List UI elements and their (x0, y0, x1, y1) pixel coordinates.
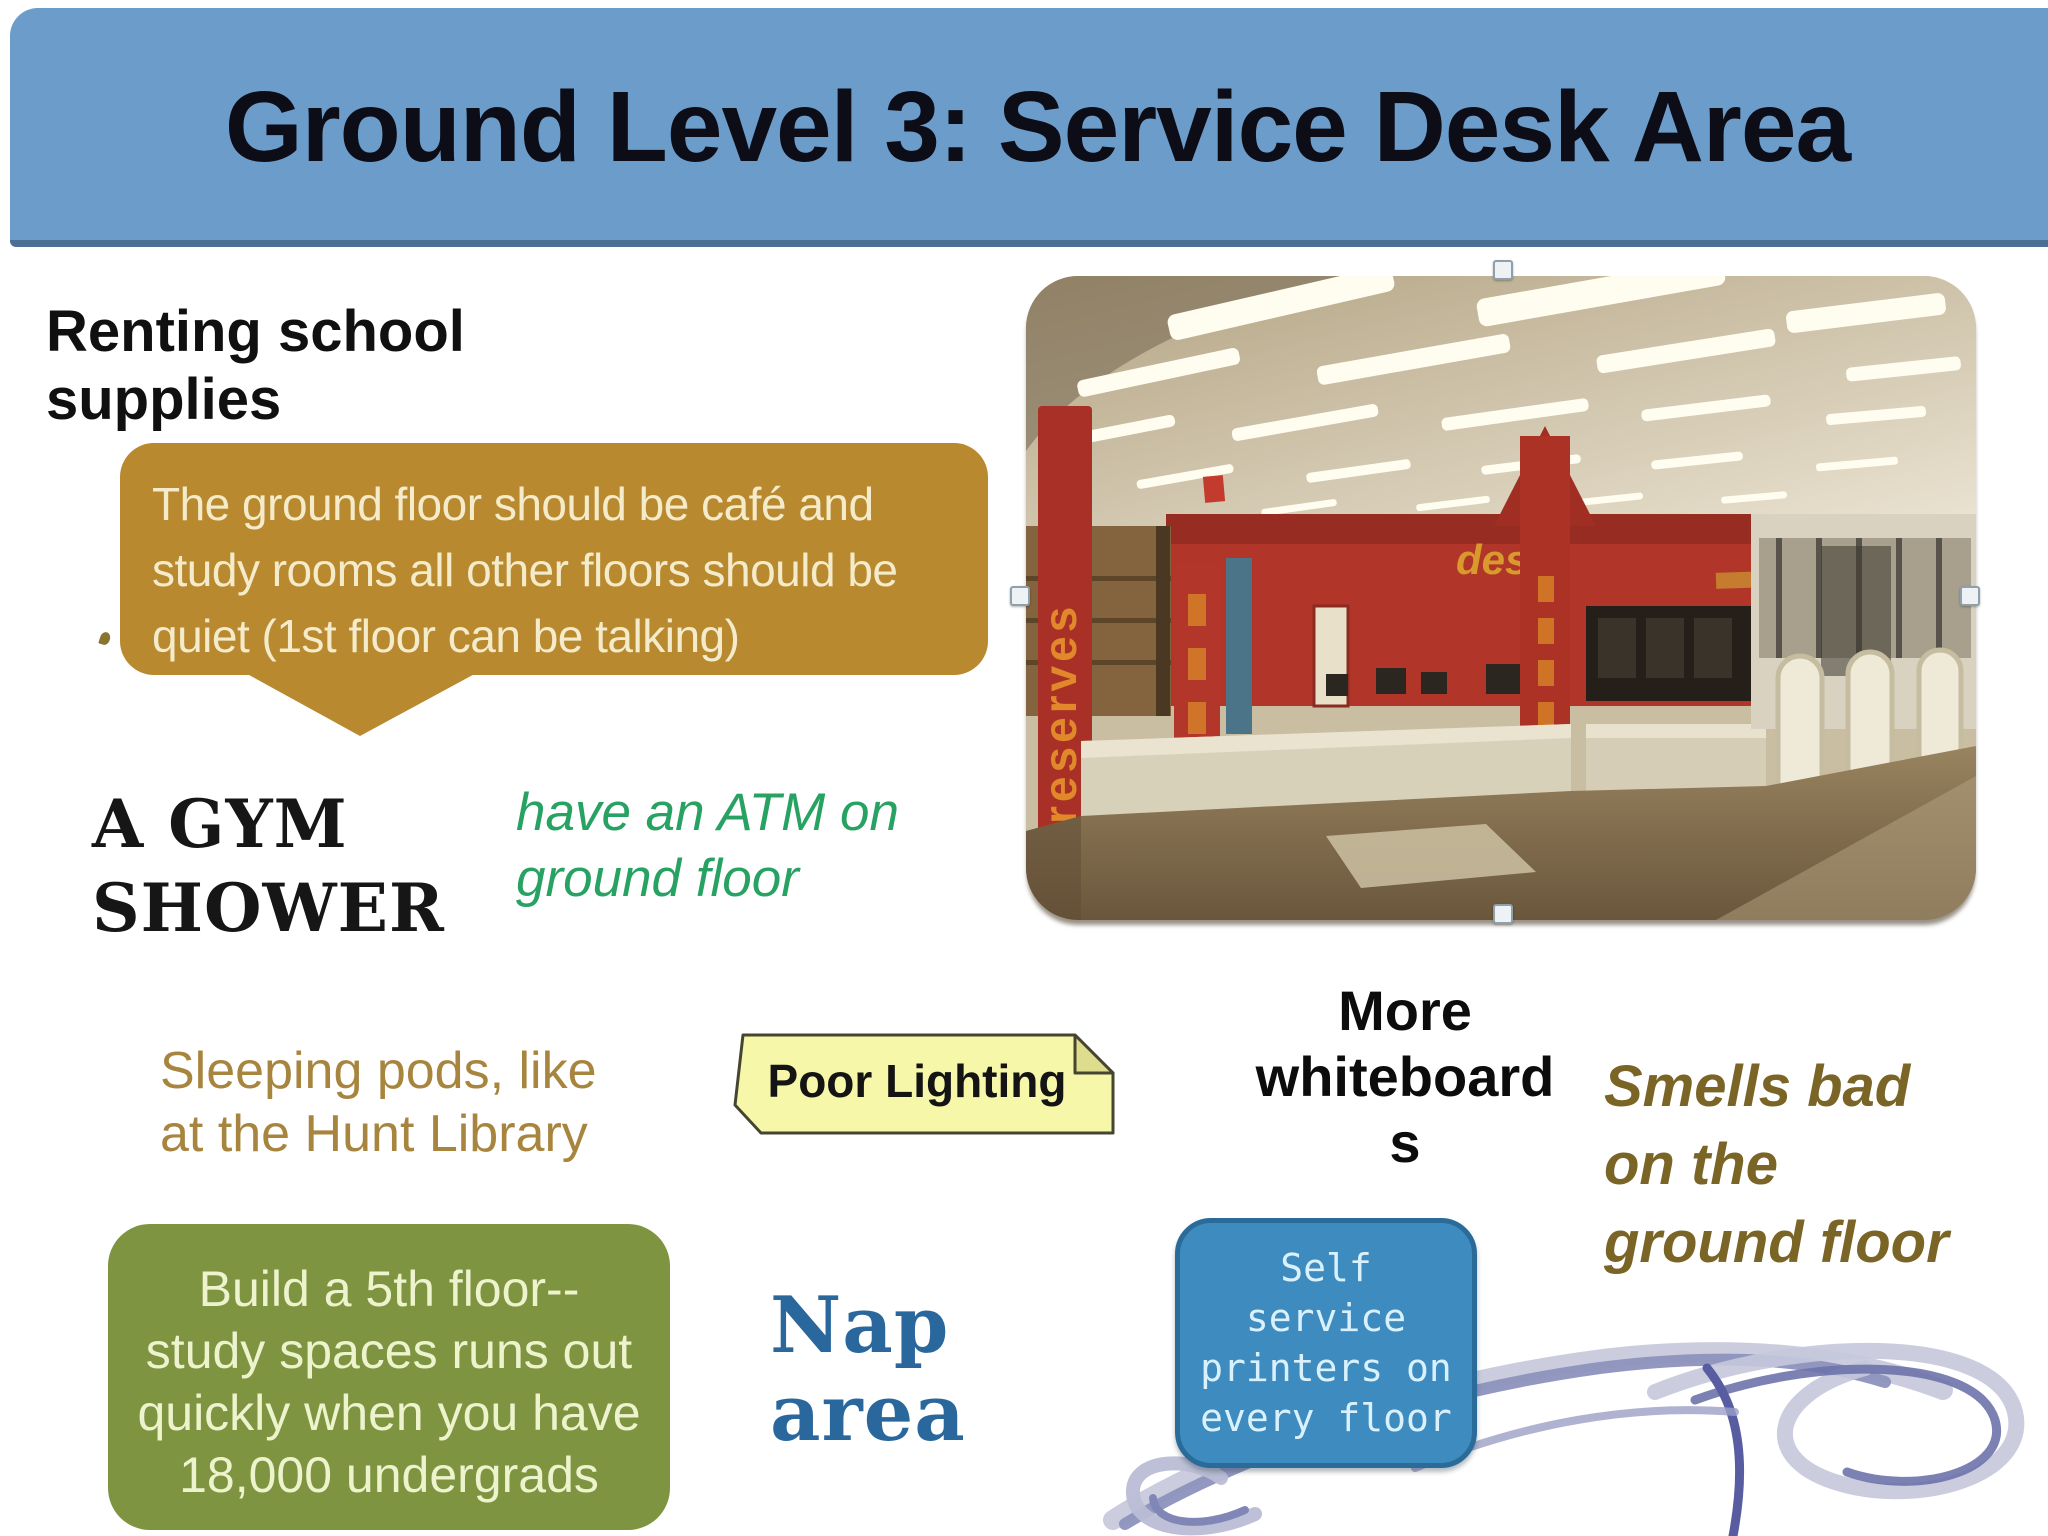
note-line: Renting school (46, 298, 465, 366)
note-line: ground floor (1604, 1204, 1949, 1282)
note-line: ground floor (516, 846, 899, 912)
note-renting-school-supplies[interactable]: Renting school supplies (46, 298, 465, 434)
slide-canvas: Ground Level 3: Service Desk Area Rentin… (0, 0, 2048, 1536)
resize-handle-right[interactable] (1960, 586, 1980, 606)
note-line: quickly when you have (108, 1382, 670, 1444)
note-line: supplies (46, 366, 465, 434)
note-line: A GYM (92, 782, 445, 866)
note-line: Nap (770, 1282, 966, 1370)
note-line: s (1245, 1110, 1565, 1176)
resize-handle-bottom[interactable] (1493, 904, 1513, 924)
page-title: Ground Level 3: Service Desk Area (225, 64, 1850, 185)
photo-illustration: reserves desk (1026, 276, 1976, 920)
note-self-service-printers[interactable]: Self service printers on every floor (1175, 1218, 1477, 1468)
note-line: area (770, 1370, 966, 1458)
note-smells-bad[interactable]: Smells bad on the ground floor (1604, 1048, 1949, 1282)
note-build-5th-floor[interactable]: Build a 5th floor-- study spaces runs ou… (108, 1224, 670, 1530)
note-line: Sleeping pods, like (160, 1040, 597, 1103)
stray-ink-mark (98, 631, 112, 646)
note-line: have an ATM on (516, 780, 899, 846)
note-line: whiteboard (1245, 1044, 1565, 1110)
resize-handle-top[interactable] (1493, 260, 1513, 280)
photo-service-desk[interactable]: reserves desk (1026, 276, 1976, 920)
note-line: quiet (1st floor can be talking) (152, 603, 898, 669)
note-line: The ground floor should be café and (152, 471, 898, 537)
poor-lighting-label: Poor Lighting (721, 1031, 1113, 1131)
note-line: More (1245, 978, 1565, 1044)
note-line: study spaces runs out (108, 1320, 670, 1382)
note-line: at the Hunt Library (160, 1103, 597, 1166)
speech-bubble-tail (240, 670, 482, 736)
note-line: 18,000 undergrads (108, 1444, 670, 1506)
note-line: Build a 5th floor-- (108, 1258, 670, 1320)
title-banner: Ground Level 3: Service Desk Area (10, 8, 2048, 247)
note-nap-area[interactable]: Nap area (770, 1282, 966, 1458)
note-line: Self (1180, 1243, 1472, 1293)
note-atm[interactable]: have an ATM on ground floor (516, 780, 899, 912)
note-line: SHOWER (92, 866, 445, 950)
note-line: study rooms all other floors should be (152, 537, 898, 603)
note-line: every floor (1180, 1393, 1472, 1443)
note-line: Smells bad (1604, 1048, 1949, 1126)
note-more-whiteboards[interactable]: More whiteboard s (1245, 978, 1565, 1176)
note-line: printers on (1180, 1343, 1472, 1393)
resize-handle-left[interactable] (1010, 586, 1030, 606)
speech-bubble-ground-floor[interactable]: The ground floor should be café and stud… (120, 443, 988, 675)
photo-sign-reserves: reserves (1034, 603, 1086, 824)
note-gym-shower[interactable]: A GYM SHOWER (92, 782, 445, 950)
note-sleeping-pods[interactable]: Sleeping pods, like at the Hunt Library (160, 1040, 597, 1166)
photo-red-sign (1203, 475, 1225, 503)
note-line: on the (1604, 1126, 1949, 1204)
speech-bubble-text: The ground floor should be café and stud… (152, 471, 898, 669)
note-line: service (1180, 1293, 1472, 1343)
